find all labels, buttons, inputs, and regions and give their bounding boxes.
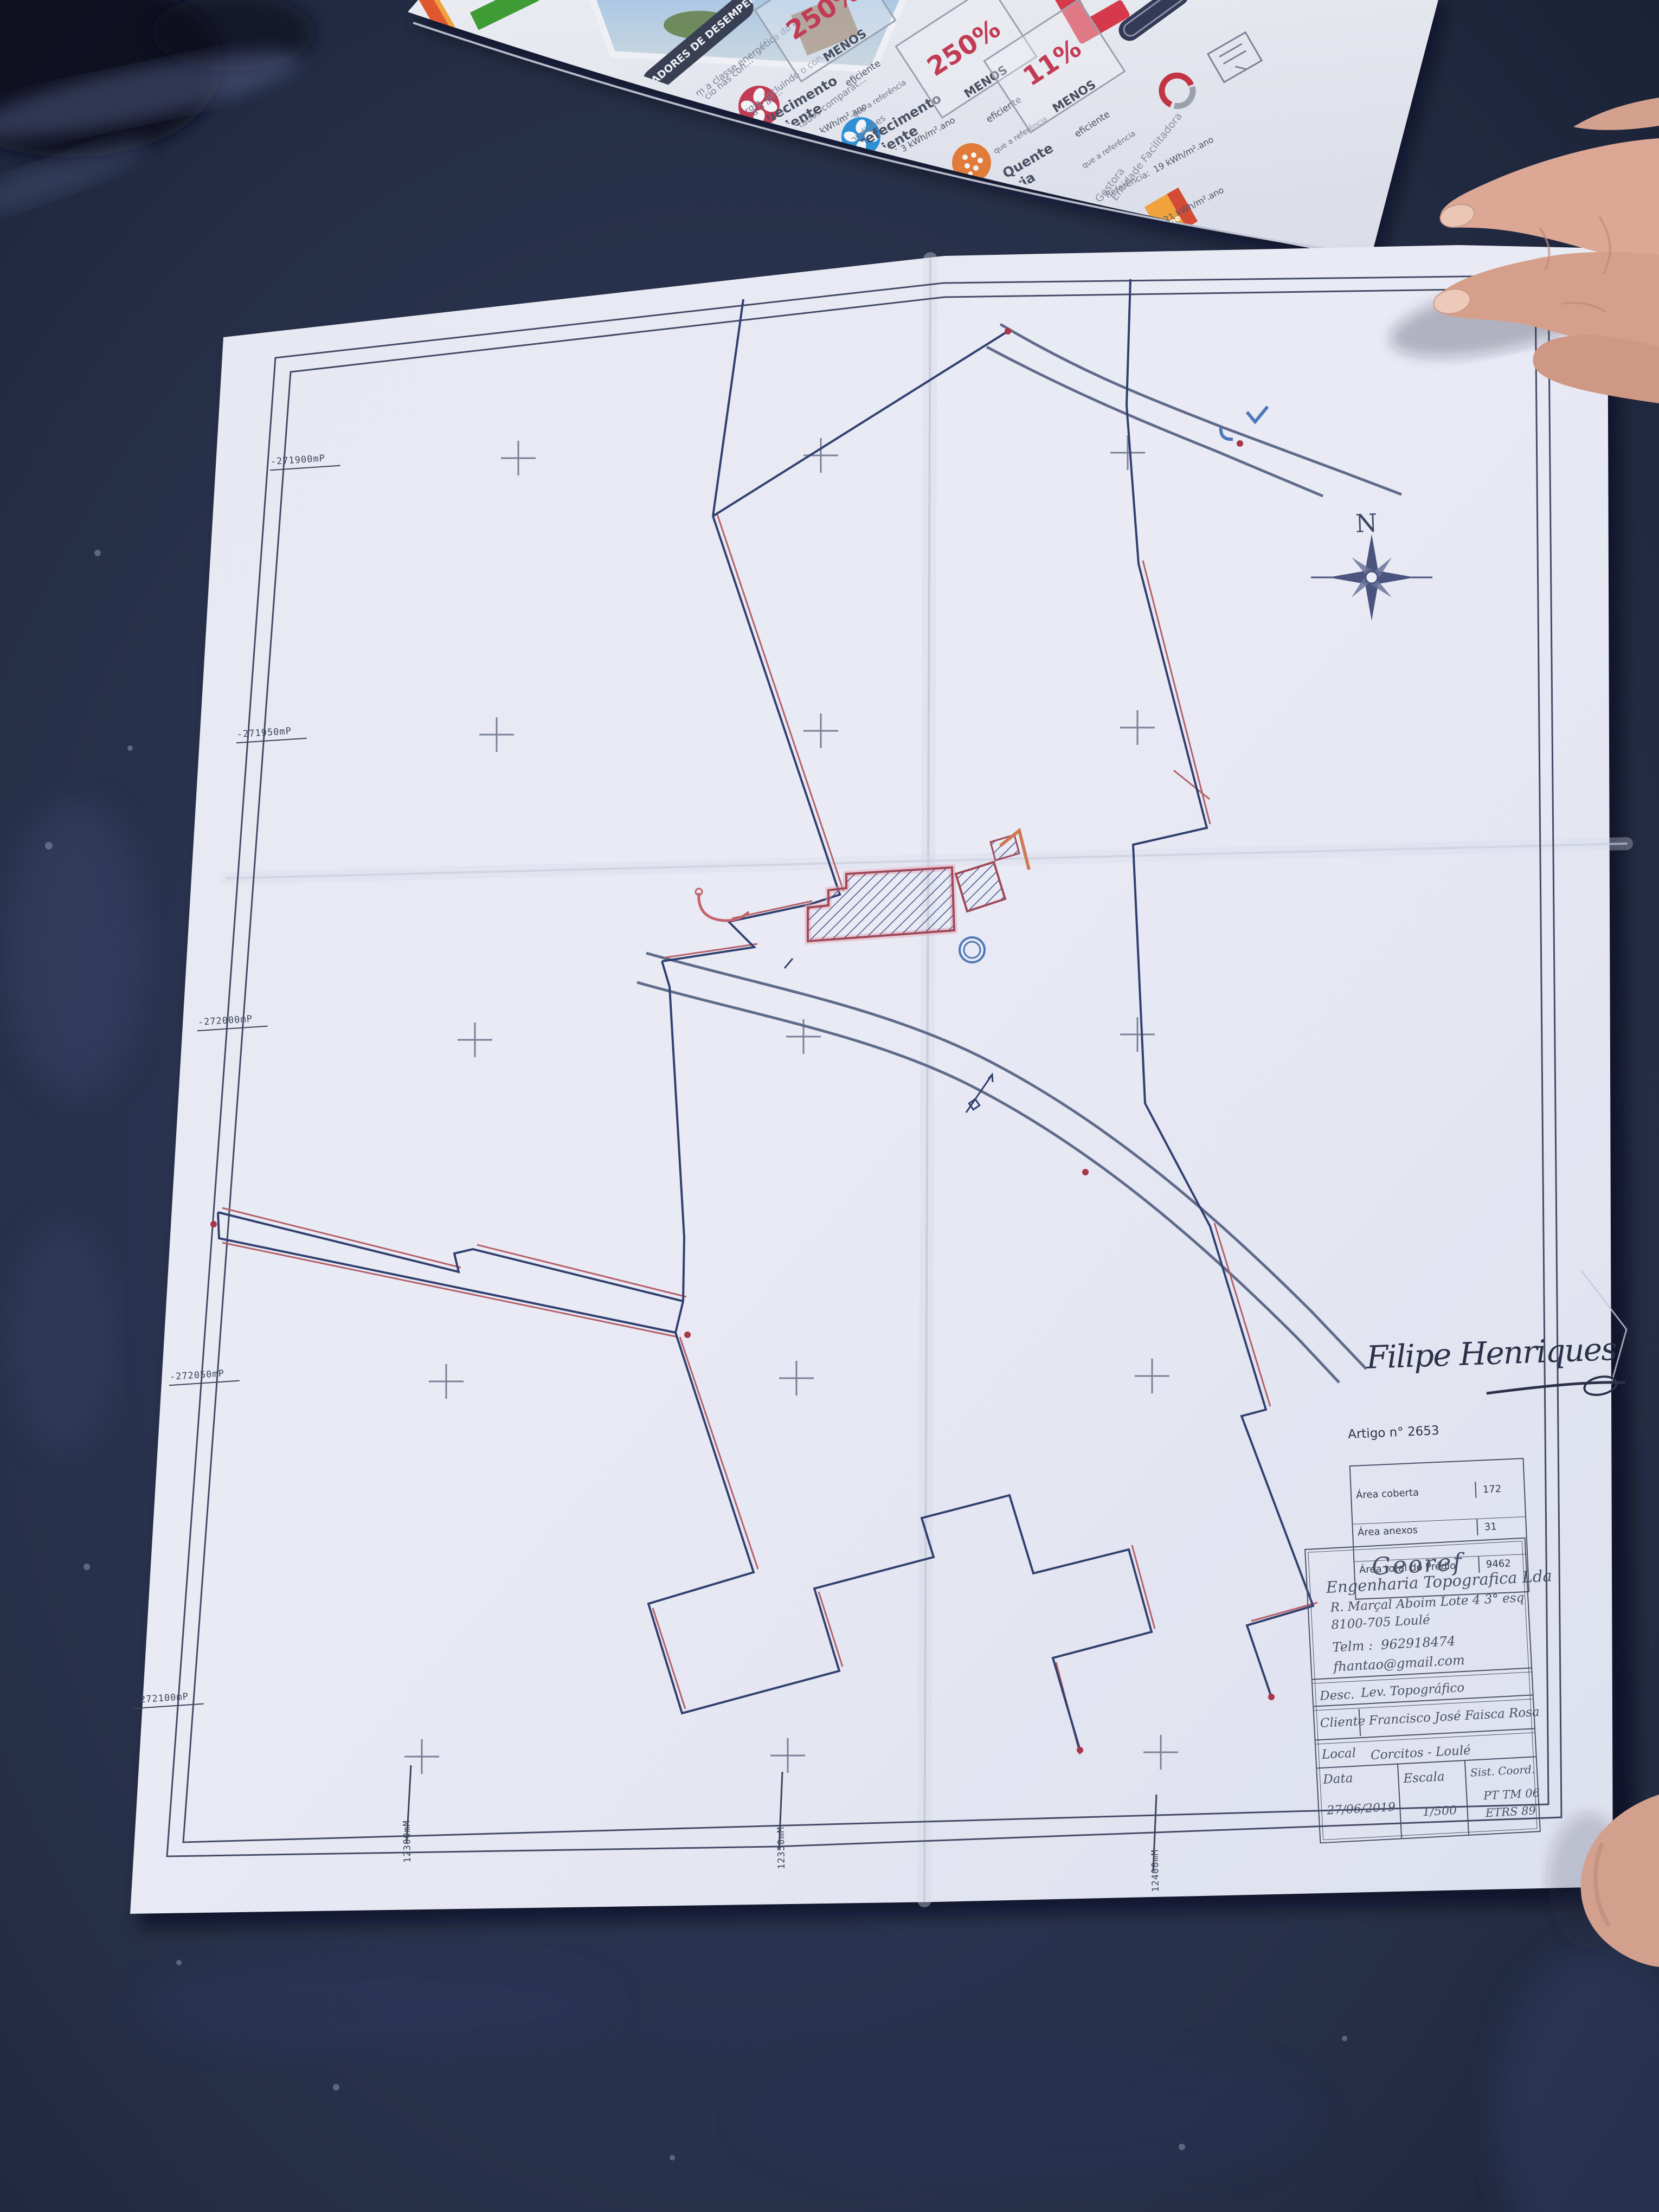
north-label: N — [1355, 508, 1378, 538]
artigo-row-anexos: Área anexos31 — [1353, 1516, 1526, 1541]
scene-graphics — [0, 0, 1659, 2212]
local-label: Local — [1321, 1746, 1356, 1762]
artigo-title: Artigo n° 2653 — [1348, 1420, 1523, 1442]
photo-scene: Este certificado apresenta a cl... energ… — [0, 0, 1659, 2212]
coord-label-12350: 12350mM — [776, 1827, 787, 1869]
data-label: Data — [1323, 1771, 1353, 1787]
artigo-row-coberta: Área coberta172 — [1351, 1480, 1524, 1503]
title-block: Georef Engenharia Topografica Lda R. Mar… — [1304, 1538, 1541, 1844]
desc-label: Desc. — [1320, 1688, 1355, 1703]
escala-label: Escala — [1403, 1770, 1445, 1786]
sist-coord-value-2: ETRS 89 — [1485, 1804, 1536, 1819]
escala-value: 1/500 — [1422, 1804, 1457, 1819]
coord-label-12400: 12400mM — [1150, 1849, 1161, 1892]
coord-label-12300: 12300mM — [402, 1820, 413, 1863]
